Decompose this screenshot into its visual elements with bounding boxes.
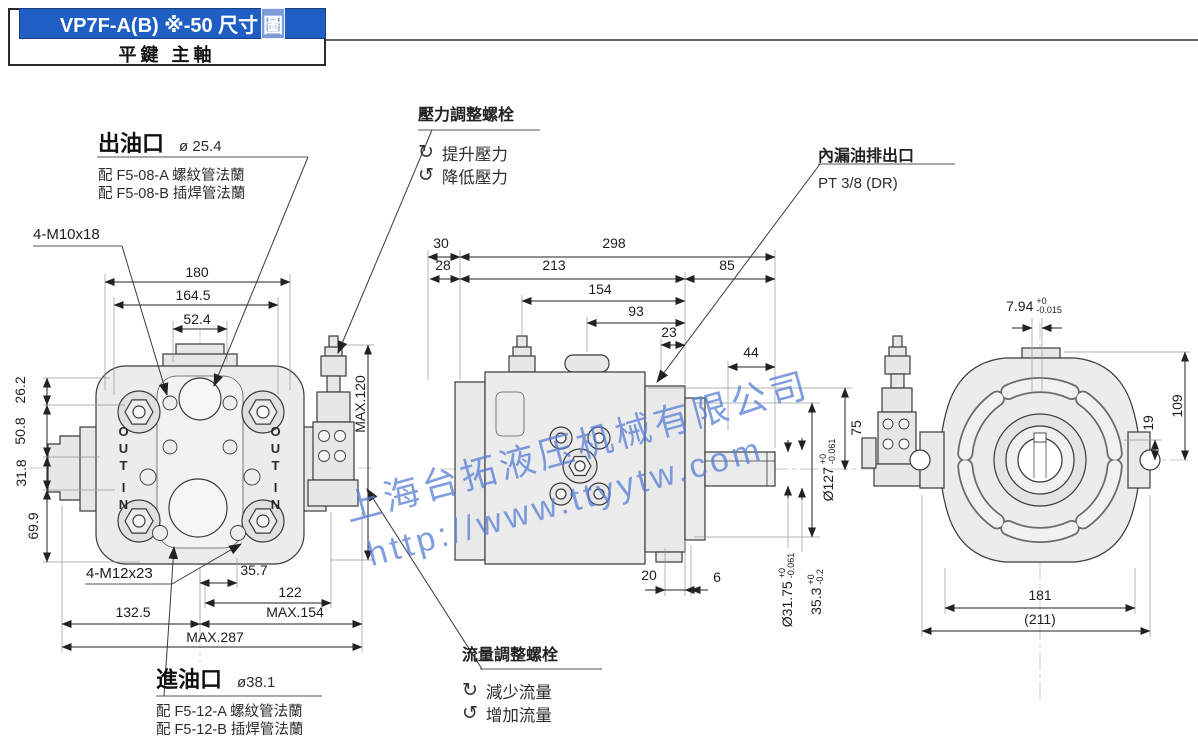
dim-rear-211: (211) <box>1024 611 1056 627</box>
dim-front-52-4: 52.4 <box>183 311 210 327</box>
callout-inlet: 進油口 ø38.1 配 F5-12-A 螺紋管法蘭 配 F5-12-B 插焊管法… <box>156 662 303 739</box>
port-label-in-right: IN <box>268 480 283 514</box>
flow-increase-label: 增加流量 <box>486 702 552 726</box>
dim-front-max120: MAX.120 <box>352 375 368 433</box>
callout-flow-screw: 流量調整螺栓 ↻ 減少流量 ↺ 增加流量 <box>462 641 558 725</box>
dim-rear-key-width: 7.94+0-0.015 <box>1006 297 1062 315</box>
front-view-drawing <box>48 336 358 564</box>
dim-side-23: 23 <box>661 324 677 340</box>
drawing-lineart <box>0 0 1198 750</box>
dim-front-180: 180 <box>185 264 208 280</box>
dim-side-85: 85 <box>719 257 735 273</box>
outlet-title: 出油口 <box>98 126 164 158</box>
dim-side-298: 298 <box>602 235 625 251</box>
port-label-out-right: OUT <box>268 424 283 475</box>
callout-drain: 內漏油排出口 PT 3/8 (DR) <box>818 142 914 192</box>
pressure-raise-label: 提升壓力 <box>442 141 508 165</box>
outlet-diameter: ø 25.4 <box>179 138 222 155</box>
rear-view-drawing <box>862 336 1160 562</box>
callout-pressure-screw: 壓力調整螺栓 ↻ 提升壓力 ↺ 降低壓力 <box>418 101 514 187</box>
title-block: VP7F-A(B) ※-50 尺寸圖 平鍵 主軸 <box>8 8 326 66</box>
pressure-lower-label: 降低壓力 <box>442 164 508 188</box>
inlet-flange-a: 配 F5-12-A 螺紋管法蘭 <box>156 703 303 721</box>
port-label-out-left: OUT <box>116 424 131 475</box>
callout-outlet: 出油口 ø 25.4 配 F5-08-A 螺紋管法蘭 配 F5-08-B 插焊管… <box>98 126 245 203</box>
dim-side-pilot-dia: Ø127+0-0.061 <box>819 439 837 502</box>
dim-side-30: 30 <box>433 235 449 251</box>
dim-rear-181: 181 <box>1028 587 1051 603</box>
clockwise-icon: ↻ <box>418 143 434 162</box>
page-subtitle: 平鍵 主軸 <box>10 41 324 67</box>
dim-side-75: 75 <box>848 420 864 436</box>
dim-side-key-height: 35.3+0-0.2 <box>807 569 825 615</box>
dim-side-93: 93 <box>628 303 644 319</box>
bolt-spec-top: 4-M10x18 <box>33 226 100 243</box>
page-title-text: VP7F-A(B) ※-50 尺寸 <box>60 9 258 38</box>
side-view-drawing <box>455 336 775 564</box>
inlet-flange-b: 配 F5-12-B 插焊管法蘭 <box>156 721 303 739</box>
dim-front-35-7: 35.7 <box>240 562 267 578</box>
pressure-screw-title: 壓力調整螺栓 <box>418 101 514 125</box>
dim-front-max287: MAX.287 <box>186 629 244 645</box>
drain-port-size: PT 3/8 (DR) <box>818 175 914 192</box>
dim-front-50-8: 50.8 <box>12 417 28 444</box>
bolt-spec-bottom: 4-M12x23 <box>86 565 153 582</box>
dim-front-max154: MAX.154 <box>266 604 324 620</box>
inlet-title: 進油口 <box>156 662 222 694</box>
dim-front-164-5: 164.5 <box>175 287 210 303</box>
dim-side-154: 154 <box>588 281 611 297</box>
dim-rear-109: 109 <box>1169 394 1185 417</box>
port-label-in-left: IN <box>116 480 131 514</box>
dim-front-69-9: 69.9 <box>25 512 41 539</box>
clockwise-icon: ↻ <box>462 681 478 700</box>
dim-front-122: 122 <box>278 584 301 600</box>
dim-side-28: 28 <box>435 257 451 273</box>
dim-front-132-5: 132.5 <box>115 604 150 620</box>
dimension-drawing-page: VP7F-A(B) ※-50 尺寸圖 平鍵 主軸 出油口 ø 25.4 配 F5… <box>0 0 1198 750</box>
outlet-flange-b: 配 F5-08-B 插焊管法蘭 <box>98 185 245 203</box>
drain-title: 內漏油排出口 <box>818 142 914 166</box>
dim-side-shaft-dia: Ø31.75+0-0.061 <box>778 553 796 627</box>
page-title: VP7F-A(B) ※-50 尺寸圖 <box>19 8 326 39</box>
dim-front-26-2: 26.2 <box>12 376 28 403</box>
dim-front-31-8: 31.8 <box>13 459 29 486</box>
counterclockwise-icon: ↺ <box>462 704 478 723</box>
dim-side-44: 44 <box>743 344 759 360</box>
inlet-diameter: ø38.1 <box>237 674 275 691</box>
dim-side-20: 20 <box>641 567 657 583</box>
page-title-tail: 圖 <box>261 8 285 39</box>
flow-decrease-label: 減少流量 <box>486 679 552 703</box>
dim-side-213: 213 <box>542 257 565 273</box>
outlet-flange-a: 配 F5-08-A 螺紋管法蘭 <box>98 167 245 185</box>
dim-side-6: 6 <box>713 569 721 585</box>
counterclockwise-icon: ↺ <box>418 166 434 185</box>
flow-screw-title: 流量調整螺栓 <box>462 641 558 665</box>
dim-rear-19: 19 <box>1140 415 1156 431</box>
